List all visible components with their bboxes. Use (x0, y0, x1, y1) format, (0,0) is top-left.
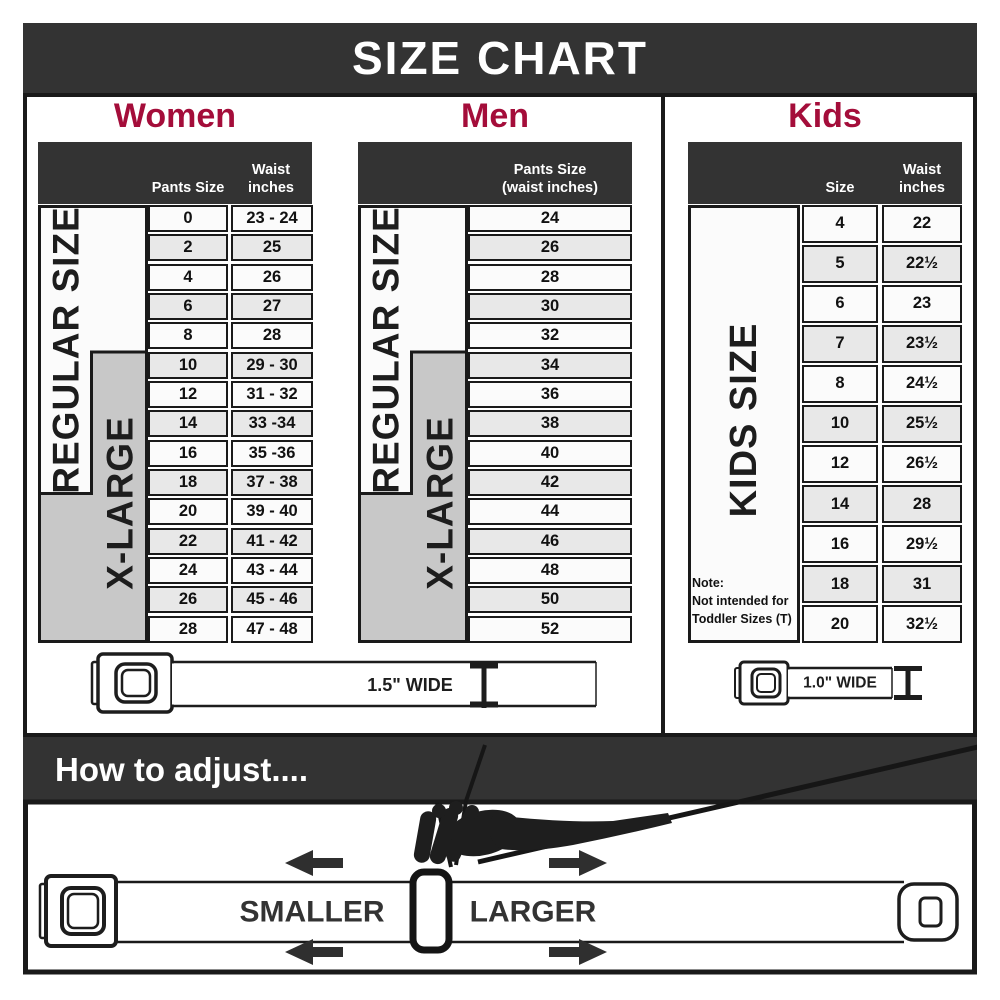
kids-waist-cell: 31 (882, 565, 962, 603)
women-section-title: Women (38, 96, 312, 136)
women-waist-cell: 33 -34 (231, 410, 313, 437)
women-pants-size-header: Pants Size (148, 179, 228, 197)
kids-size-table: 422522½623723½824½1025½1226½14281629½183… (802, 205, 962, 643)
men-pants-size-cell: 40 (468, 440, 632, 467)
women-waist-cell: 27 (231, 293, 313, 320)
women-waist-cell: 29 - 30 (231, 352, 313, 379)
kids-size-cell: 18 (802, 565, 878, 603)
women-waist-cell: 26 (231, 264, 313, 291)
kids-size-cell: 6 (802, 285, 878, 323)
women-pants-size-cell: 22 (148, 528, 228, 555)
women-waist-cell: 35 -36 (231, 440, 313, 467)
men-size-group-labels: REGULAR SIZE X-LARGE (358, 205, 468, 643)
adult-belt-width-label: 1.5" WIDE (367, 675, 453, 695)
men-pants-size-cell: 28 (468, 264, 632, 291)
kids-waist-header: Waist inches (882, 161, 962, 197)
women-pants-size-cell: 10 (148, 352, 228, 379)
men-pants-size-cell: 38 (468, 410, 632, 437)
kids-note-line: Note: (692, 574, 800, 592)
size-chart-title-bar: SIZE CHART (23, 23, 977, 93)
women-regular-size-label: REGULAR SIZE (46, 206, 87, 493)
women-size-table: 023 - 242254266278281029 - 301231 - 3214… (148, 205, 313, 643)
kids-waist-cell: 22 (882, 205, 962, 243)
women-waist-cell: 25 (231, 234, 313, 261)
belt-tip (899, 884, 957, 940)
kids-size-cell: 20 (802, 605, 878, 643)
kids-size-cell: 7 (802, 325, 878, 363)
kids-table-header: Size Waist inches (688, 142, 962, 204)
men-pants-size-cell: 32 (468, 322, 632, 349)
women-waist-cell: 31 - 32 (231, 381, 313, 408)
men-pants-size-cell: 24 (468, 205, 632, 232)
men-pants-size-cell: 30 (468, 293, 632, 320)
men-pants-size-cell: 26 (468, 234, 632, 261)
men-section-title: Men (358, 96, 632, 136)
kids-waist-cell: 26½ (882, 445, 962, 483)
men-table-header: Pants Size (waist inches) (358, 142, 632, 204)
women-waist-cell: 45 - 46 (231, 586, 313, 613)
women-xlarge-label: X-LARGE (100, 416, 141, 590)
kids-note-line: Not intended for (692, 592, 800, 610)
size-chart-page: SIZE CHART Women Men Kids Pants Size Wai… (0, 0, 1000, 1000)
men-pants-size-cell: 50 (468, 586, 632, 613)
women-waist-cell: 47 - 48 (231, 616, 313, 643)
smaller-label: SMALLER (240, 896, 385, 929)
women-table-header: Pants Size Waist inches (38, 142, 312, 204)
kids-section-divider (661, 93, 665, 737)
men-regular-size-label: REGULAR SIZE (366, 206, 407, 493)
women-pants-size-cell: 0 (148, 205, 228, 232)
kids-waist-cell: 24½ (882, 365, 962, 403)
kids-size-cell: 12 (802, 445, 878, 483)
women-pants-size-cell: 18 (148, 469, 228, 496)
kids-waist-cell: 23 (882, 285, 962, 323)
women-pants-size-cell: 4 (148, 264, 228, 291)
women-pants-size-cell: 14 (148, 410, 228, 437)
women-pants-size-cell: 28 (148, 616, 228, 643)
adjust-title: How to adjust.... (55, 751, 308, 788)
women-pants-size-cell: 2 (148, 234, 228, 261)
kids-waist-cell: 25½ (882, 405, 962, 443)
women-waist-cell: 37 - 38 (231, 469, 313, 496)
women-pants-size-cell: 12 (148, 381, 228, 408)
kids-size-cell: 16 (802, 525, 878, 563)
page-title: SIZE CHART (352, 31, 648, 85)
men-pants-size-cell: 44 (468, 498, 632, 525)
width-measure-icon (894, 666, 922, 700)
kids-belt-width-label: 1.0" WIDE (803, 675, 877, 692)
women-pants-size-cell: 26 (148, 586, 228, 613)
how-to-adjust-section: How to adjust.... SMALLER LARGER (23, 737, 977, 975)
kids-note: Note:Not intended forToddler Sizes (T) (692, 574, 800, 628)
kids-section-title: Kids (688, 96, 962, 136)
women-waist-cell: 41 - 42 (231, 528, 313, 555)
women-waist-cell: 28 (231, 322, 313, 349)
women-waist-header: Waist inches (230, 161, 312, 197)
kids-waist-cell: 22½ (882, 245, 962, 283)
men-pants-size-cell: 48 (468, 557, 632, 584)
kids-size-label: KIDS SIZE (723, 323, 765, 518)
men-pants-size-cell: 34 (468, 352, 632, 379)
women-pants-size-cell: 20 (148, 498, 228, 525)
seatbelt-buckle-icon (40, 876, 116, 946)
larger-label: LARGER (470, 896, 597, 929)
kids-belt-illustration: 1.0" WIDE (730, 654, 942, 706)
kids-waist-cell: 28 (882, 485, 962, 523)
men-pants-size-cell: 36 (468, 381, 632, 408)
kids-size-cell: 14 (802, 485, 878, 523)
kids-size-cell: 4 (802, 205, 878, 243)
men-size-table: 242628303234363840424446485052 (468, 205, 632, 643)
women-waist-cell: 39 - 40 (231, 498, 313, 525)
women-waist-cell: 43 - 44 (231, 557, 313, 584)
kids-size-cell: 10 (802, 405, 878, 443)
kids-size-cell: 5 (802, 245, 878, 283)
women-pants-size-cell: 16 (148, 440, 228, 467)
women-pants-size-cell: 6 (148, 293, 228, 320)
kids-size-cell: 8 (802, 365, 878, 403)
women-pants-size-cell: 24 (148, 557, 228, 584)
men-pants-size-cell: 42 (468, 469, 632, 496)
women-pants-size-cell: 8 (148, 322, 228, 349)
kids-waist-cell: 23½ (882, 325, 962, 363)
men-pants-size-header: Pants Size (waist inches) (468, 161, 632, 197)
belt-slider (413, 872, 449, 950)
men-xlarge-label: X-LARGE (420, 416, 461, 590)
kids-note-line: Toddler Sizes (T) (692, 610, 800, 628)
men-pants-size-cell: 46 (468, 528, 632, 555)
kids-waist-cell: 32½ (882, 605, 962, 643)
women-waist-cell: 23 - 24 (231, 205, 313, 232)
adult-belt-illustration: 1.5" WIDE (80, 648, 610, 716)
kids-size-header: Size (802, 179, 878, 197)
women-size-group-labels: REGULAR SIZE X-LARGE (38, 205, 148, 643)
men-pants-size-cell: 52 (468, 616, 632, 643)
kids-waist-cell: 29½ (882, 525, 962, 563)
